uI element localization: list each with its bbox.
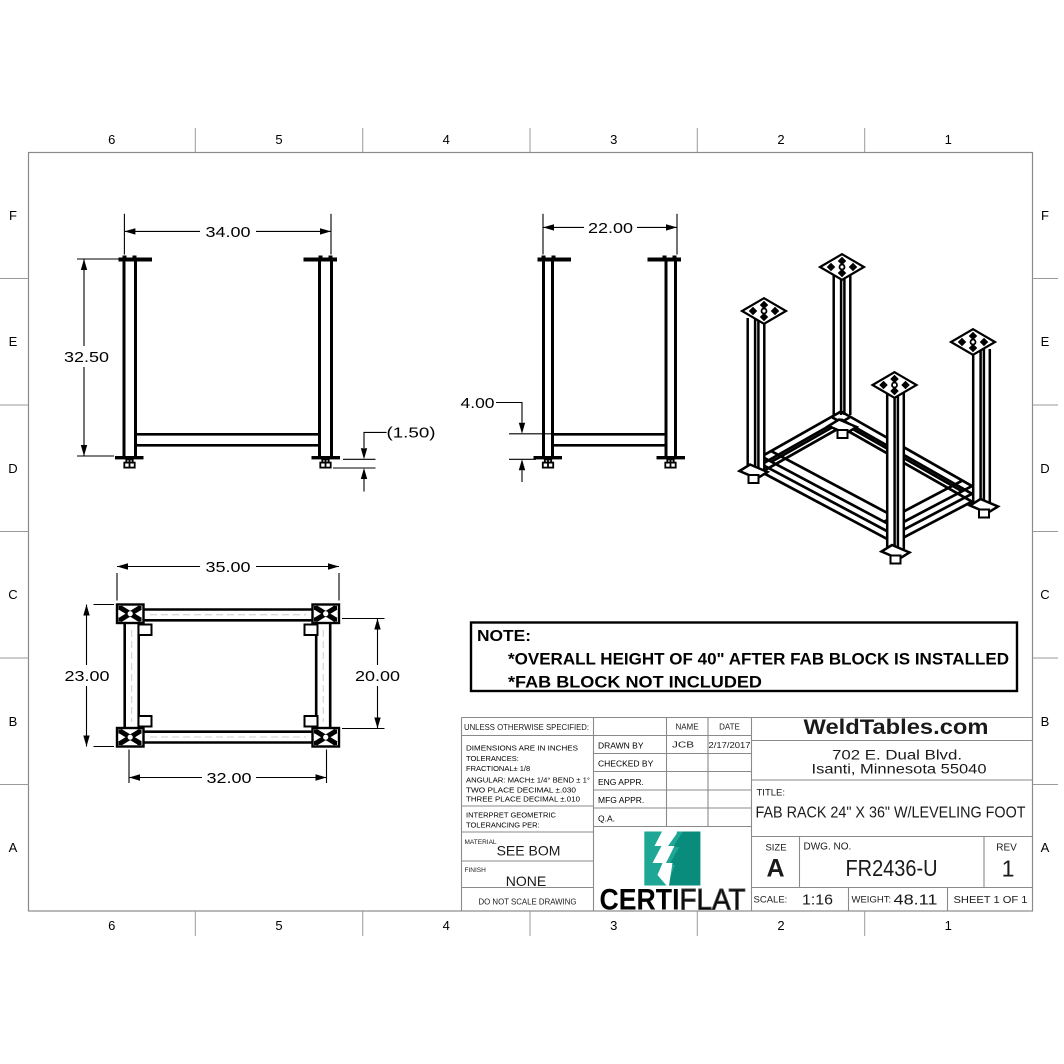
svg-text:3: 3 [610,918,617,933]
svg-text:22.00: 22.00 [588,220,633,237]
svg-text:DRAWN BY: DRAWN BY [598,741,644,751]
svg-text:1: 1 [1002,856,1015,882]
svg-text:E: E [1041,334,1050,349]
svg-text:B: B [9,714,18,729]
svg-text:35.00: 35.00 [206,559,251,576]
svg-text:32.00: 32.00 [207,770,252,787]
svg-text:FRACTIONAL± 1/8: FRACTIONAL± 1/8 [466,764,530,773]
svg-text:THREE PLACE DECIMAL ±.010: THREE PLACE DECIMAL ±.010 [466,795,580,804]
svg-text:FINISH: FINISH [465,867,487,874]
svg-text:702 E. Dual Blvd.: 702 E. Dual Blvd. [832,748,962,763]
svg-text:ANGULAR: MACH± 1/4° BEND ± 1°: ANGULAR: MACH± 1/4° BEND ± 1° [466,776,590,785]
svg-text:FAB RACK 24" X 36" W/LEVELING: FAB RACK 24" X 36" W/LEVELING FOOT [756,805,1026,822]
svg-text:SCALE:: SCALE: [754,895,788,906]
svg-text:SIZE: SIZE [765,843,786,854]
svg-text:DATE: DATE [719,723,740,732]
svg-text:NONE: NONE [506,873,546,889]
svg-text:D: D [1040,461,1049,476]
svg-text:WEIGHT:: WEIGHT: [852,895,892,906]
svg-text:JCB: JCB [672,740,694,750]
svg-text:(1.50): (1.50) [387,425,436,442]
svg-text:*OVERALL HEIGHT OF 40" AFTER: *OVERALL HEIGHT OF 40" AFTER FAB BLOCK I… [508,650,1009,669]
svg-text:ENG APPR.: ENG APPR. [598,777,644,787]
svg-text:UNLESS OTHERWISE SPECIFIED:: UNLESS OTHERWISE SPECIFIED: [464,723,589,732]
svg-text:F: F [1041,208,1049,223]
svg-text:C: C [8,587,17,602]
svg-text:E: E [9,334,18,349]
svg-text:C: C [1040,587,1049,602]
svg-text:MFG APPR.: MFG APPR. [598,795,644,805]
svg-text:TWO PLACE DECIMAL ±.030: TWO PLACE DECIMAL ±.030 [466,785,576,794]
svg-text:TITLE:: TITLE: [757,788,786,799]
svg-text:5: 5 [275,918,282,933]
svg-text:SEE BOM: SEE BOM [497,843,561,859]
svg-text:1: 1 [945,918,952,933]
svg-text:1: 1 [945,132,952,147]
svg-text:TOLERANCING PER:: TOLERANCING PER: [466,821,540,830]
svg-text:20.00: 20.00 [355,668,400,685]
svg-text:SHEET 1 OF 1: SHEET 1 OF 1 [954,895,1028,906]
svg-text:3: 3 [610,132,617,147]
svg-text:FLAT: FLAT [680,884,746,917]
svg-text:TOLERANCES:: TOLERANCES: [466,754,519,763]
svg-text:5: 5 [275,132,282,147]
svg-text:DIMENSIONS ARE IN INCHES: DIMENSIONS ARE IN INCHES [466,744,578,753]
svg-text:DWG. NO.: DWG. NO. [804,842,852,853]
svg-text:MATERIAL: MATERIAL [465,839,497,846]
svg-text:4: 4 [443,918,450,933]
svg-text:4: 4 [443,132,450,147]
svg-text:A: A [9,840,18,855]
svg-text:23.00: 23.00 [65,668,110,685]
svg-text:A: A [1041,840,1050,855]
svg-text:INTERPRET GEOMETRIC: INTERPRET GEOMETRIC [466,811,556,820]
svg-text:2: 2 [777,132,784,147]
svg-text:B: B [1041,714,1050,729]
svg-text:A: A [766,855,784,883]
svg-text:6: 6 [108,132,115,147]
svg-text:48.11: 48.11 [894,892,938,909]
svg-text:CERTI: CERTI [600,884,680,917]
svg-text:DO NOT SCALE DRAWING: DO NOT SCALE DRAWING [479,897,577,907]
svg-text:2: 2 [777,918,784,933]
svg-text:WeldTables.com: WeldTables.com [804,716,989,739]
svg-text:D: D [8,461,17,476]
svg-text:FR2436-U: FR2436-U [846,855,938,881]
svg-text:4.00: 4.00 [461,395,495,412]
svg-text:2/17/2017: 2/17/2017 [709,740,751,750]
svg-text:REV: REV [996,843,1017,854]
svg-text:Isanti, Minnesota 55040: Isanti, Minnesota 55040 [812,762,987,777]
svg-text:Q.A.: Q.A. [598,814,615,824]
svg-text:32.50: 32.50 [64,349,109,366]
svg-text:F: F [9,208,17,223]
svg-text:6: 6 [108,918,115,933]
svg-text:CHECKED BY: CHECKED BY [598,759,654,769]
svg-text:NOTE:: NOTE: [477,628,531,645]
svg-text:*FAB BLOCK NOT INCLUDED: *FAB BLOCK NOT INCLUDED [508,673,762,692]
svg-text:NAME: NAME [675,723,698,732]
svg-text:1:16: 1:16 [802,892,833,909]
svg-text:34.00: 34.00 [206,224,251,241]
